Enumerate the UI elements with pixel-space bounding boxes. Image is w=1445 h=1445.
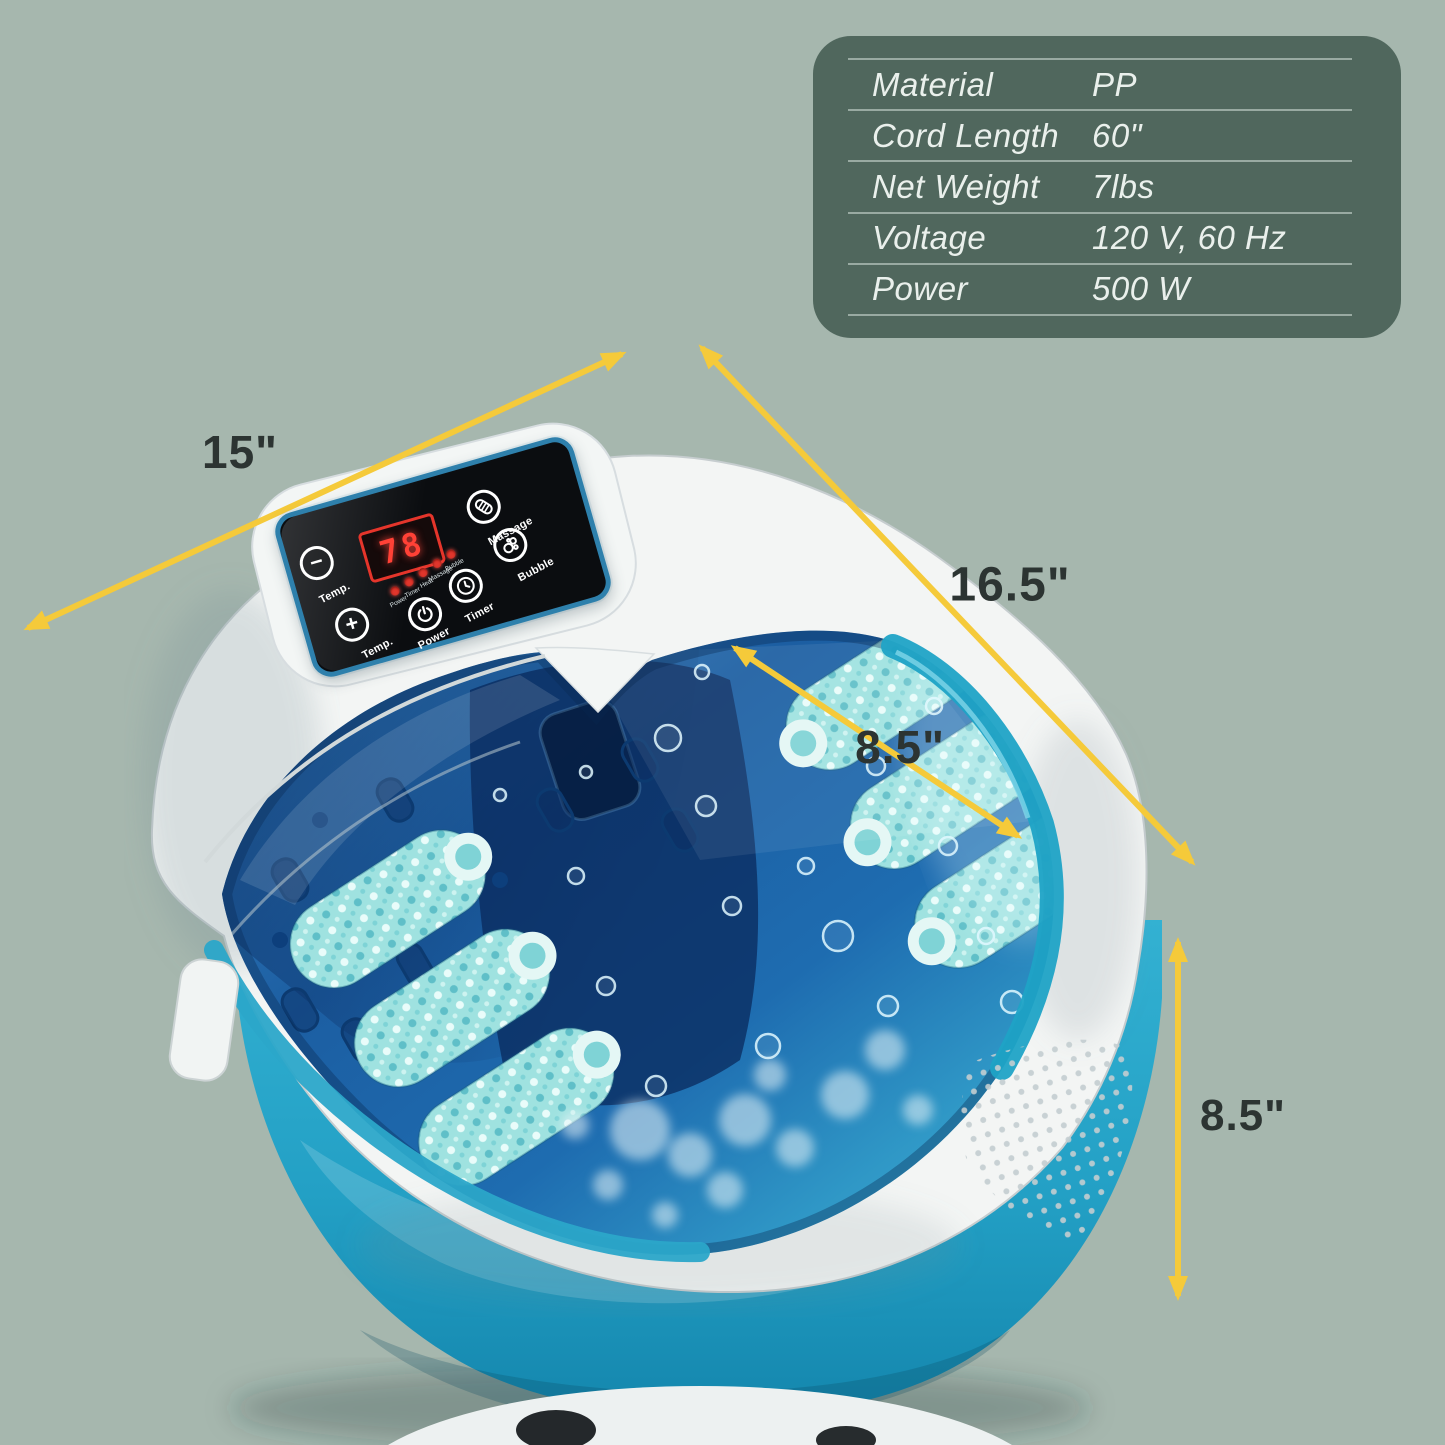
spec-value: 120 V, 60 Hz <box>1092 219 1286 257</box>
bubbles-icon <box>495 530 525 560</box>
power-icon <box>411 601 438 628</box>
spec-value: PP <box>1092 66 1137 104</box>
bubble-indicator-led <box>445 549 456 560</box>
spec-label: Net Weight <box>872 168 1092 206</box>
table-row: Power 500 W <box>848 263 1352 316</box>
bubble-label: Bubble <box>516 555 556 584</box>
massage-button <box>463 486 505 528</box>
spec-label: Cord Length <box>872 117 1092 155</box>
temp-up-button: + <box>331 604 373 646</box>
table-row: Net Weight 7lbs <box>848 160 1352 211</box>
clock-icon <box>452 572 479 599</box>
timer-label: Timer <box>463 600 496 625</box>
spec-rows: Material PP Cord Length 60" Net Weight 7… <box>848 58 1352 316</box>
power-indicator-led <box>389 585 400 596</box>
dimension-label-top-width: 15" <box>202 425 278 479</box>
product-infographic: 78 Power Timer Heat Massage Bubble − Tem… <box>0 0 1445 1445</box>
table-row: Material PP <box>848 58 1352 109</box>
spec-label: Material <box>872 66 1092 104</box>
table-row: Cord Length 60" <box>848 109 1352 160</box>
spec-label: Voltage <box>872 219 1092 257</box>
minus-icon: − <box>307 550 325 575</box>
spec-label: Power <box>872 270 1092 308</box>
dimension-label-height: 8.5" <box>1200 1091 1286 1141</box>
spec-table: Material PP Cord Length 60" Net Weight 7… <box>813 36 1401 338</box>
spec-value: 7lbs <box>1092 168 1155 206</box>
spec-value: 500 W <box>1092 270 1190 308</box>
dimension-label-inner-width: 8.5" <box>855 720 945 774</box>
spec-value: 60" <box>1092 117 1142 155</box>
temp-down-label: Temp. <box>317 580 352 606</box>
timer-indicator-led <box>403 576 414 587</box>
table-row: Voltage 120 V, 60 Hz <box>848 212 1352 263</box>
plus-icon: + <box>343 611 361 636</box>
dimension-label-diagonal: 16.5" <box>949 558 1070 613</box>
temp-down-button: − <box>296 542 338 584</box>
temp-up-label: Temp. <box>360 635 395 661</box>
foot-icon <box>469 492 499 522</box>
side-latch <box>167 957 241 1084</box>
